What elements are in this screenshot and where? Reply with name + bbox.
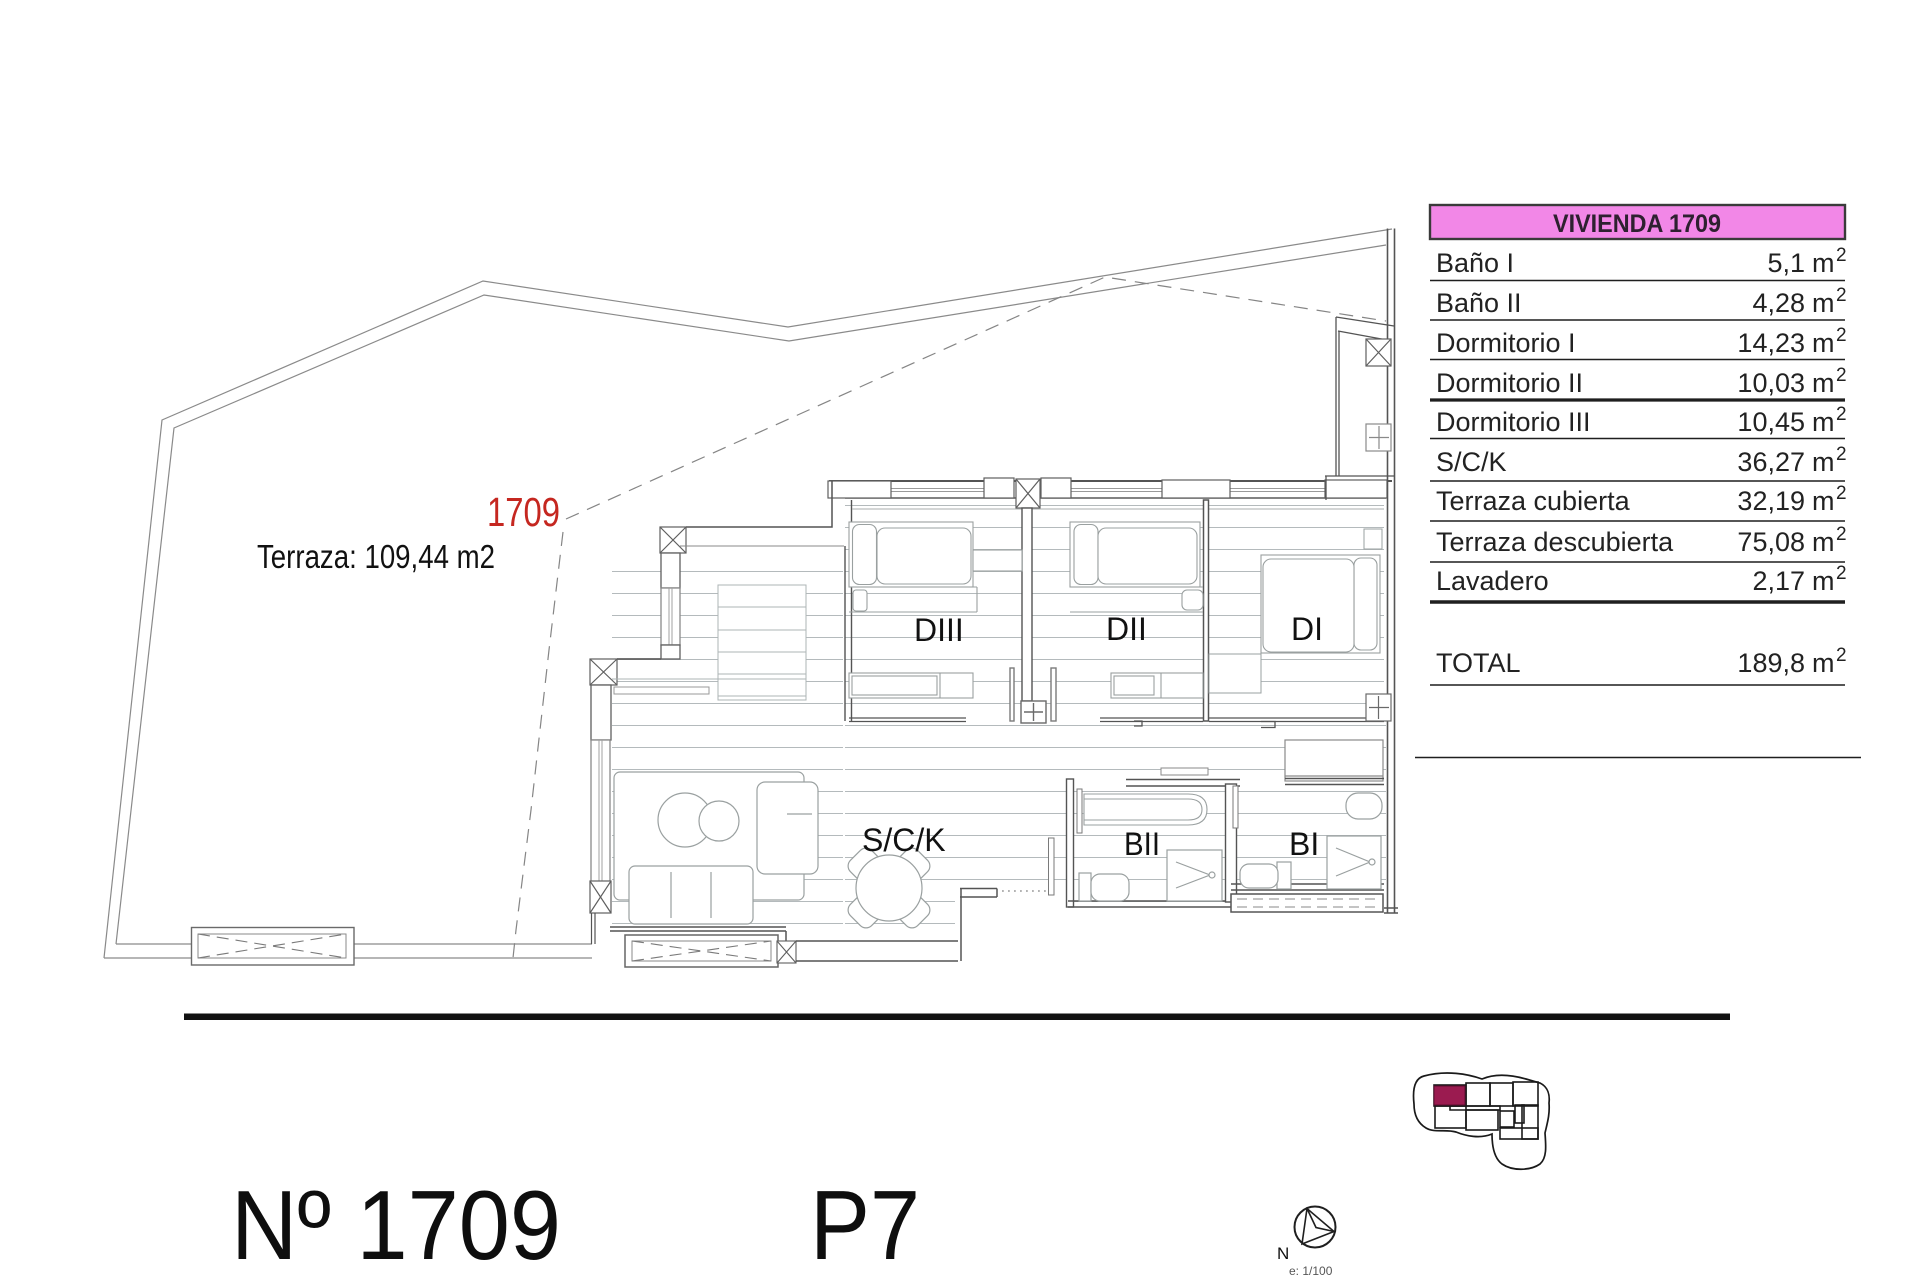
svg-text:Dormitorio I: Dormitorio I [1436, 328, 1576, 358]
svg-text:Terraza descubierta: Terraza descubierta [1436, 527, 1674, 557]
svg-text:Dormitorio II: Dormitorio II [1436, 368, 1583, 398]
svg-text:2: 2 [1836, 404, 1847, 425]
svg-text:4,28: 4,28 [1752, 288, 1805, 318]
svg-text:m: m [1812, 328, 1835, 358]
svg-text:Nº 1709: Nº 1709 [231, 1170, 561, 1280]
svg-text:m: m [1812, 288, 1835, 318]
svg-text:S/C/K: S/C/K [1436, 447, 1507, 477]
svg-text:BI: BI [1289, 826, 1319, 862]
svg-text:DIII: DIII [914, 612, 964, 648]
svg-text:2: 2 [1836, 524, 1847, 545]
svg-text:Terraza cubierta: Terraza cubierta [1436, 486, 1631, 516]
svg-text:BII: BII [1124, 826, 1160, 862]
svg-text:10,03: 10,03 [1737, 368, 1805, 398]
svg-text:10,45: 10,45 [1737, 407, 1805, 437]
svg-text:2: 2 [1836, 365, 1847, 386]
svg-text:m: m [1812, 648, 1835, 678]
svg-text:m: m [1812, 486, 1835, 516]
svg-text:Dormitorio III: Dormitorio III [1436, 407, 1591, 437]
svg-text:14,23: 14,23 [1737, 328, 1805, 358]
svg-text:1709: 1709 [487, 489, 560, 535]
svg-text:m: m [1812, 447, 1835, 477]
svg-text:32,19: 32,19 [1737, 486, 1805, 516]
svg-text:Baño II: Baño II [1436, 288, 1522, 318]
svg-text:2: 2 [1836, 444, 1847, 465]
svg-text:5,1: 5,1 [1767, 248, 1805, 278]
svg-text:DII: DII [1106, 611, 1147, 647]
svg-text:m: m [1812, 248, 1835, 278]
svg-text:75,08: 75,08 [1737, 527, 1805, 557]
svg-text:e: 1/100: e: 1/100 [1289, 1264, 1333, 1278]
svg-text:2: 2 [1836, 645, 1847, 666]
svg-text:36,27: 36,27 [1737, 447, 1805, 477]
svg-text:N: N [1277, 1244, 1289, 1263]
svg-text:S/C/K: S/C/K [862, 822, 946, 858]
svg-text:Lavadero: Lavadero [1436, 566, 1549, 596]
svg-text:Terraza: 109,44 m2: Terraza: 109,44 m2 [257, 538, 495, 575]
svg-text:2: 2 [1836, 483, 1847, 504]
svg-text:m: m [1812, 368, 1835, 398]
svg-text:189,8: 189,8 [1737, 648, 1805, 678]
svg-text:m: m [1812, 407, 1835, 437]
svg-text:m: m [1812, 527, 1835, 557]
svg-text:DI: DI [1291, 611, 1323, 647]
svg-text:TOTAL: TOTAL [1436, 648, 1521, 678]
svg-text:Baño I: Baño I [1436, 248, 1514, 278]
svg-text:2: 2 [1836, 245, 1847, 266]
svg-text:VIVIENDA 1709: VIVIENDA 1709 [1553, 210, 1721, 238]
svg-text:P7: P7 [810, 1170, 920, 1280]
svg-text:2: 2 [1836, 563, 1847, 584]
svg-text:2: 2 [1836, 325, 1847, 346]
svg-text:2,17: 2,17 [1752, 566, 1805, 596]
svg-text:m: m [1812, 566, 1835, 596]
svg-text:2: 2 [1836, 285, 1847, 306]
